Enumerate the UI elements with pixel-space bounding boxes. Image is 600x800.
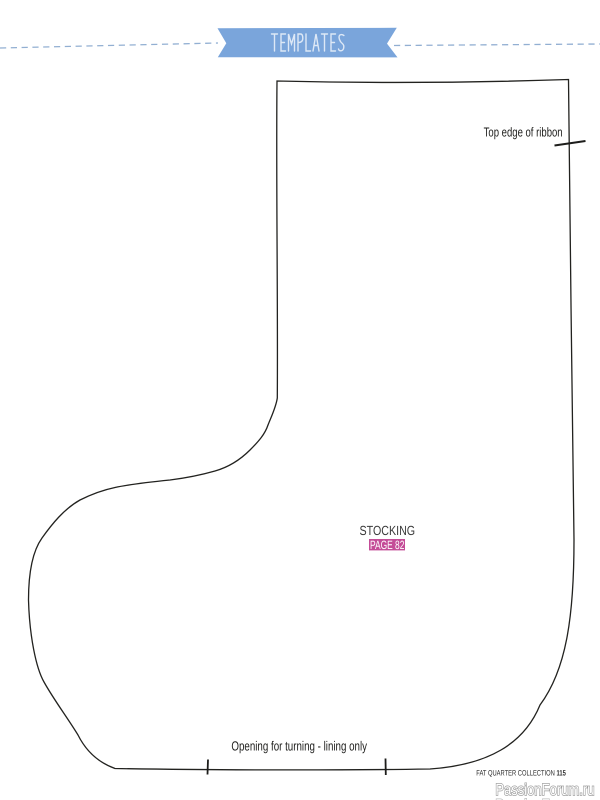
svg-text:Top edge of ribbon: Top edge of ribbon xyxy=(484,124,563,139)
svg-text:PAGE 82: PAGE 82 xyxy=(370,538,405,552)
svg-text:PassionForum.ru: PassionForum.ru xyxy=(495,797,594,800)
svg-text:Opening for turning - lining o: Opening for turning - lining only xyxy=(231,739,367,754)
svg-text:STOCKING: STOCKING xyxy=(360,523,416,538)
svg-text:FAT QUARTER COLLECTION 115: FAT QUARTER COLLECTION 115 xyxy=(476,768,566,777)
